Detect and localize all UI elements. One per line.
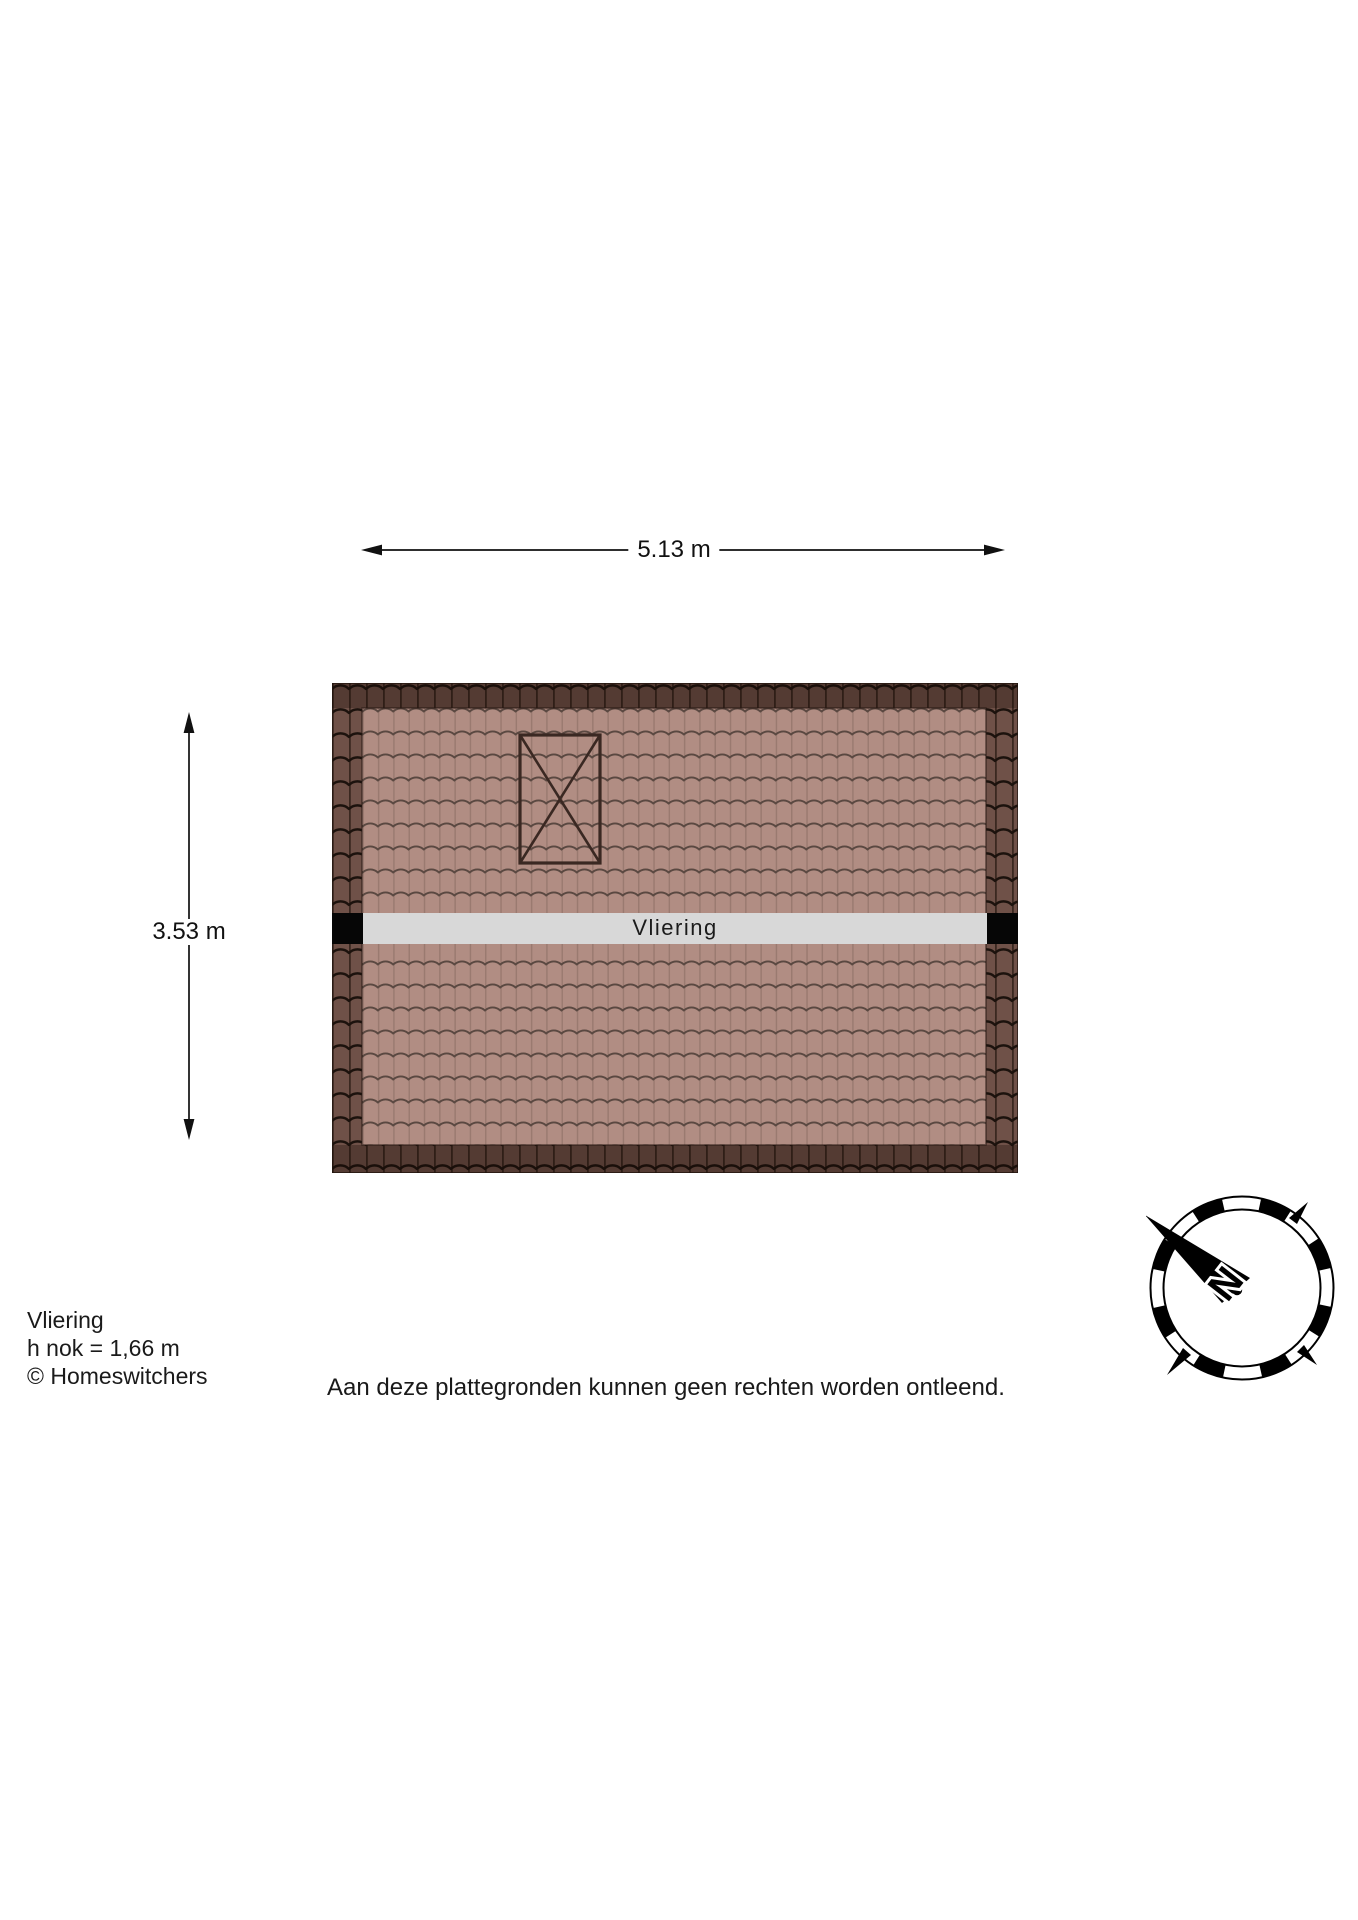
- footer-copyright: © Homeswitchers: [27, 1362, 208, 1390]
- arrowhead-down-icon: [184, 1119, 195, 1140]
- roof-plan: Vliering: [332, 683, 1018, 1173]
- depth-dimension-label: 3.53 m: [143, 919, 234, 945]
- compass-svg: N: [1146, 1192, 1338, 1384]
- roof-ridge-bottom-shade: [332, 1145, 1018, 1173]
- depth-dimension: 3.53 m: [178, 711, 200, 1141]
- width-dimension: 5.13 m: [360, 539, 1006, 561]
- footer-block: Vliering h nok = 1,66 m © Homeswitchers: [27, 1306, 208, 1390]
- arrowhead-right-icon: [984, 545, 1005, 556]
- disclaimer-text: Aan deze plattegronden kunnen geen recht…: [327, 1374, 1005, 1402]
- compass-spike-se: [1297, 1345, 1317, 1365]
- footer-ridge-height: h nok = 1,66 m: [27, 1334, 208, 1362]
- footer-room-name: Vliering: [27, 1306, 208, 1334]
- compass-rose-icon: N: [1146, 1192, 1338, 1384]
- room-label: Vliering: [332, 912, 1018, 944]
- roof-ridge-top-shade: [332, 683, 1018, 708]
- width-dimension-label: 5.13 m: [628, 537, 719, 563]
- arrowhead-left-icon: [361, 545, 382, 556]
- arrowhead-up-icon: [184, 712, 195, 733]
- floorplan-page: 5.13 m 3.53 m: [0, 0, 1358, 1920]
